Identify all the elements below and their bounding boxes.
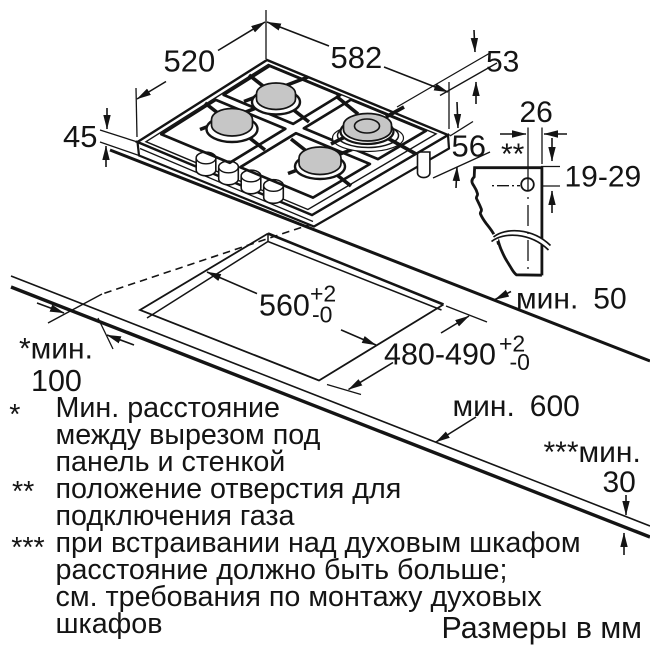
svg-text:30: 30 bbox=[603, 466, 636, 499]
svg-text:**: ** bbox=[12, 476, 34, 508]
svg-text:***мин.: ***мин. bbox=[544, 436, 641, 469]
svg-text:*: * bbox=[9, 399, 20, 431]
svg-text:480-490: 480-490 bbox=[384, 338, 496, 372]
svg-text:шкафов: шкафов bbox=[56, 608, 163, 640]
svg-text:***: *** bbox=[11, 532, 45, 564]
svg-text:Размеры в мм: Размеры в мм bbox=[442, 612, 643, 645]
svg-text:19-29: 19-29 bbox=[565, 161, 642, 194]
svg-text:520: 520 bbox=[164, 44, 216, 79]
svg-text:45: 45 bbox=[63, 119, 97, 154]
svg-text:-0: -0 bbox=[312, 302, 332, 328]
svg-text:**: ** bbox=[501, 138, 525, 171]
svg-text:582: 582 bbox=[331, 40, 383, 75]
svg-text:26: 26 bbox=[520, 96, 553, 129]
svg-text:560: 560 bbox=[259, 289, 310, 323]
svg-text:53: 53 bbox=[486, 46, 519, 79]
svg-text:*мин.: *мин. bbox=[19, 333, 93, 366]
svg-text:мин. 600: мин. 600 bbox=[453, 390, 580, 423]
svg-text:-0: -0 bbox=[510, 349, 530, 375]
svg-text:мин. 50: мин. 50 bbox=[516, 283, 627, 316]
svg-text:56: 56 bbox=[452, 129, 486, 164]
